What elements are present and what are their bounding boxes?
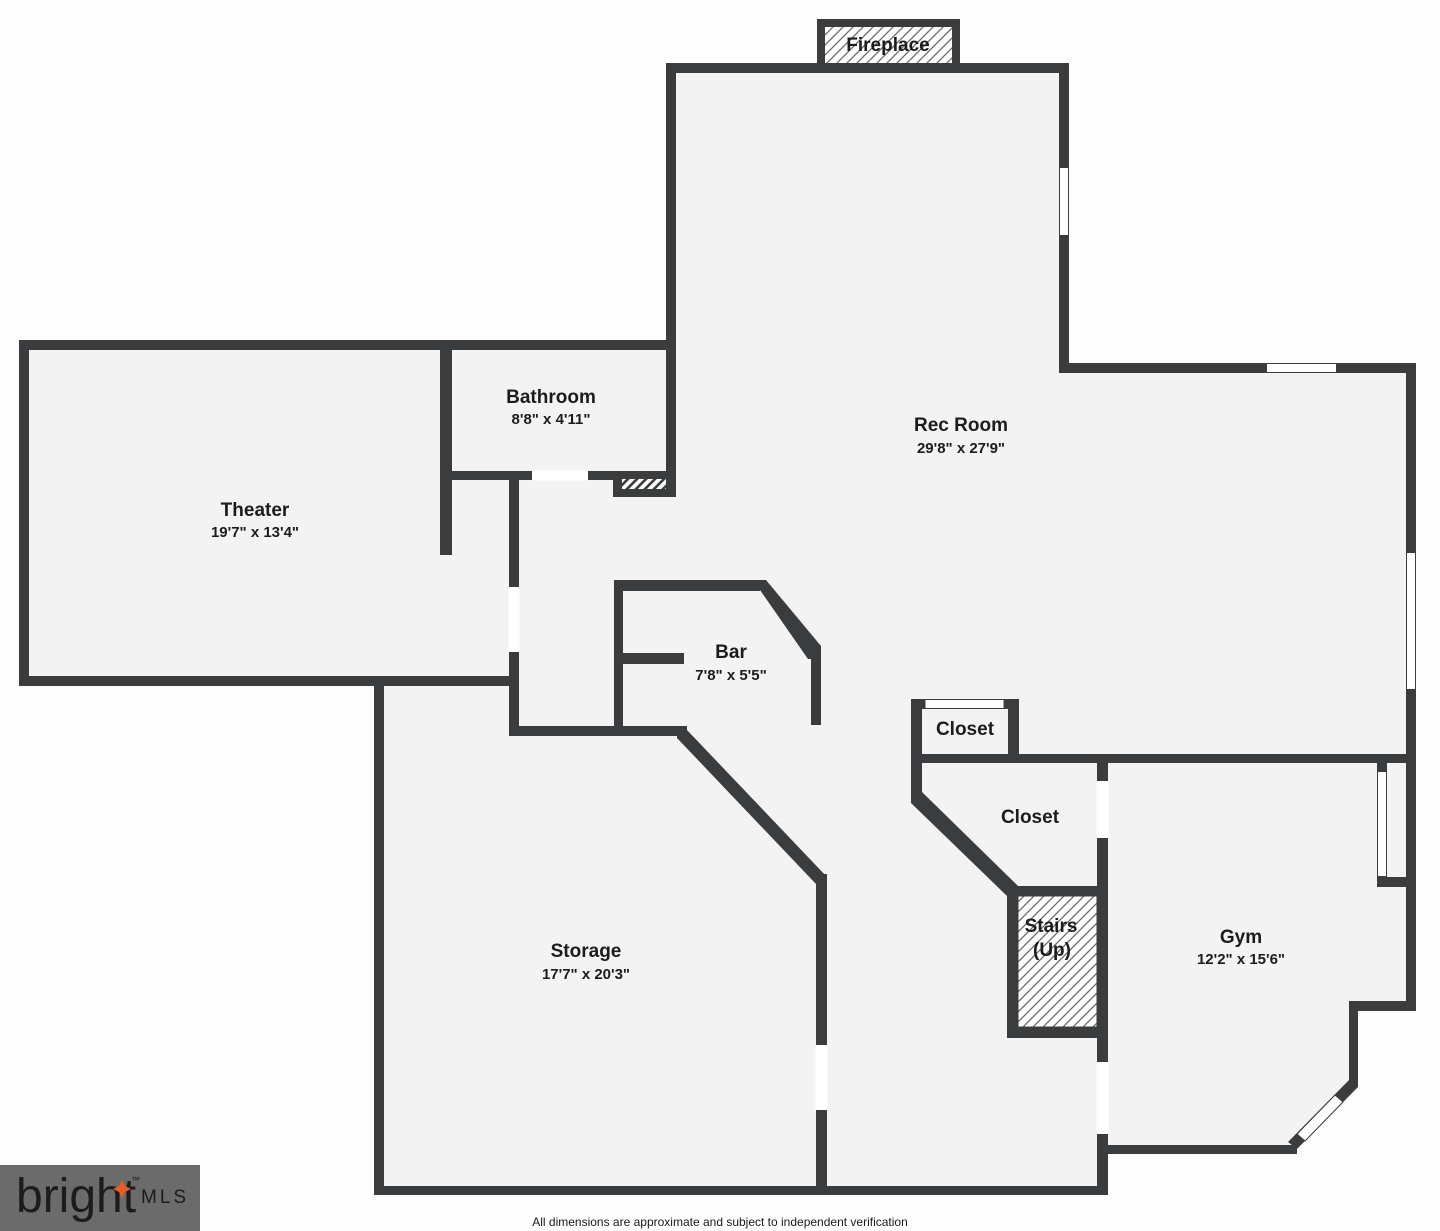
svg-text:Bar: Bar — [715, 642, 747, 663]
svg-text:17'7" x 20'3": 17'7" x 20'3" — [542, 966, 630, 983]
svg-text:Fireplace: Fireplace — [846, 35, 929, 56]
svg-text:19'7" x 13'4": 19'7" x 13'4" — [211, 524, 299, 541]
svg-text:Rec Room: Rec Room — [914, 415, 1008, 436]
svg-text:bright: bright — [16, 1170, 136, 1223]
svg-text:Closet: Closet — [936, 719, 995, 740]
svg-text:Stairs: Stairs — [1025, 916, 1078, 937]
svg-text:Theater: Theater — [221, 500, 290, 521]
svg-text:12'2" x 15'6": 12'2" x 15'6" — [1197, 951, 1285, 968]
svg-text:Gym: Gym — [1220, 927, 1262, 948]
svg-text:(Up): (Up) — [1033, 940, 1071, 961]
svg-text:8'8" x 4'11": 8'8" x 4'11" — [512, 411, 591, 428]
svg-text:™: ™ — [131, 1175, 140, 1185]
svg-text:MLS: MLS — [141, 1187, 189, 1208]
svg-text:Bathroom: Bathroom — [506, 387, 596, 408]
svg-text:Closet: Closet — [1001, 807, 1060, 828]
svg-text:29'8" x 27'9": 29'8" x 27'9" — [917, 440, 1005, 457]
svg-text:7'8" x 5'5": 7'8" x 5'5" — [695, 667, 766, 684]
svg-text:Storage: Storage — [551, 941, 622, 962]
svg-text:All dimensions are approximate: All dimensions are approximate and subje… — [532, 1215, 908, 1229]
